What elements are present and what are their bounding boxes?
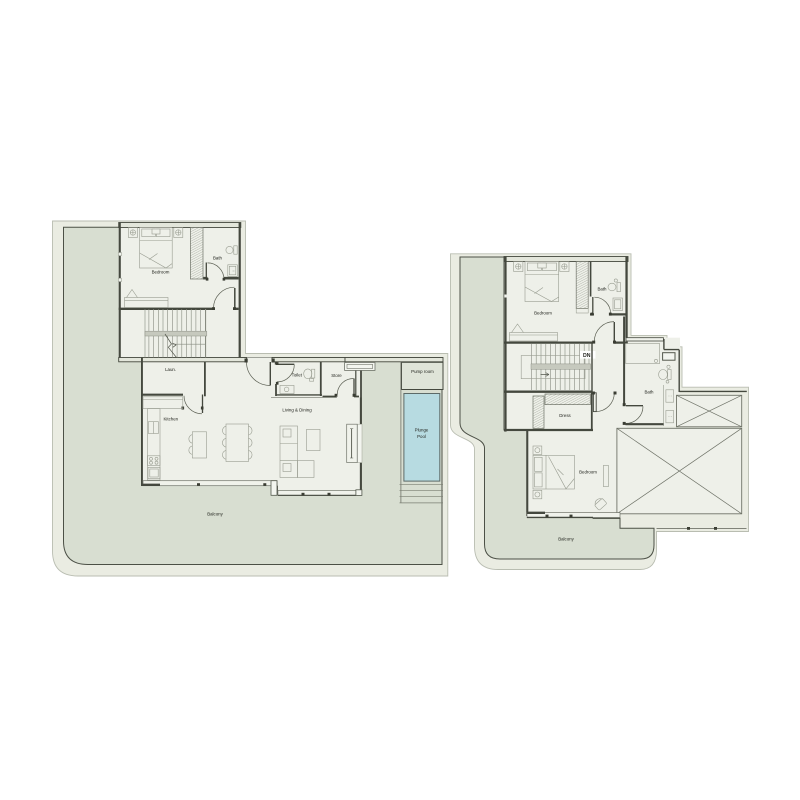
svg-text:Dress: Dress bbox=[559, 413, 571, 418]
svg-text:Bath: Bath bbox=[213, 256, 223, 261]
svg-text:Balcony: Balcony bbox=[207, 512, 223, 517]
svg-text:Toilet: Toilet bbox=[292, 372, 303, 377]
svg-text:Bedroom: Bedroom bbox=[152, 270, 170, 275]
svg-text:Pump room: Pump room bbox=[411, 369, 434, 374]
svg-text:Bath: Bath bbox=[644, 390, 654, 395]
svg-text:Pool: Pool bbox=[417, 434, 426, 439]
svg-text:Store: Store bbox=[331, 373, 342, 378]
svg-text:Kitchen: Kitchen bbox=[163, 416, 178, 421]
svg-text:DN: DN bbox=[583, 353, 591, 359]
svg-text:Bedroom: Bedroom bbox=[579, 470, 597, 475]
svg-text:Plunge: Plunge bbox=[415, 428, 429, 433]
svg-text:Living & Dining: Living & Dining bbox=[282, 408, 312, 413]
svg-text:Bath: Bath bbox=[597, 287, 607, 292]
svg-text:Balcony: Balcony bbox=[558, 536, 574, 541]
svg-text:Bedroom: Bedroom bbox=[534, 311, 552, 316]
svg-text:Laun.: Laun. bbox=[165, 367, 176, 372]
